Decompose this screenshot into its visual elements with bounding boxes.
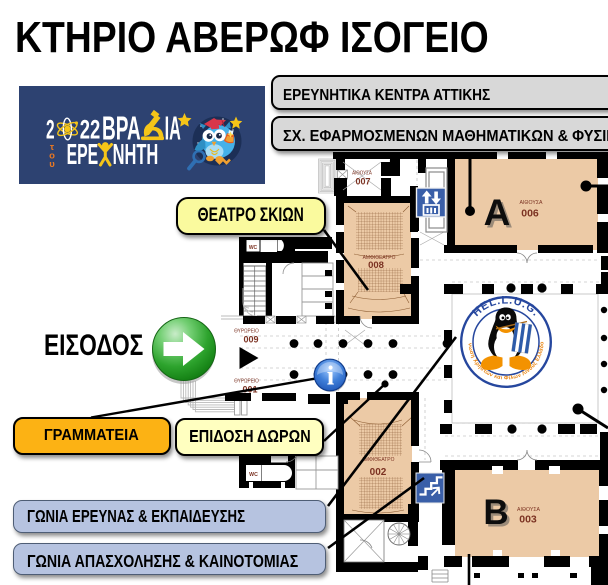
svg-text:2: 2 (46, 114, 55, 144)
svg-text:ΝΗΤΗ: ΝΗΤΗ (113, 139, 159, 171)
svg-text:ΕΡΕ: ΕΡΕ (67, 139, 99, 171)
svg-text:υ: υ (49, 159, 55, 170)
svg-text:ΙΑ: ΙΑ (165, 110, 181, 147)
svg-text:i: i (327, 361, 335, 391)
